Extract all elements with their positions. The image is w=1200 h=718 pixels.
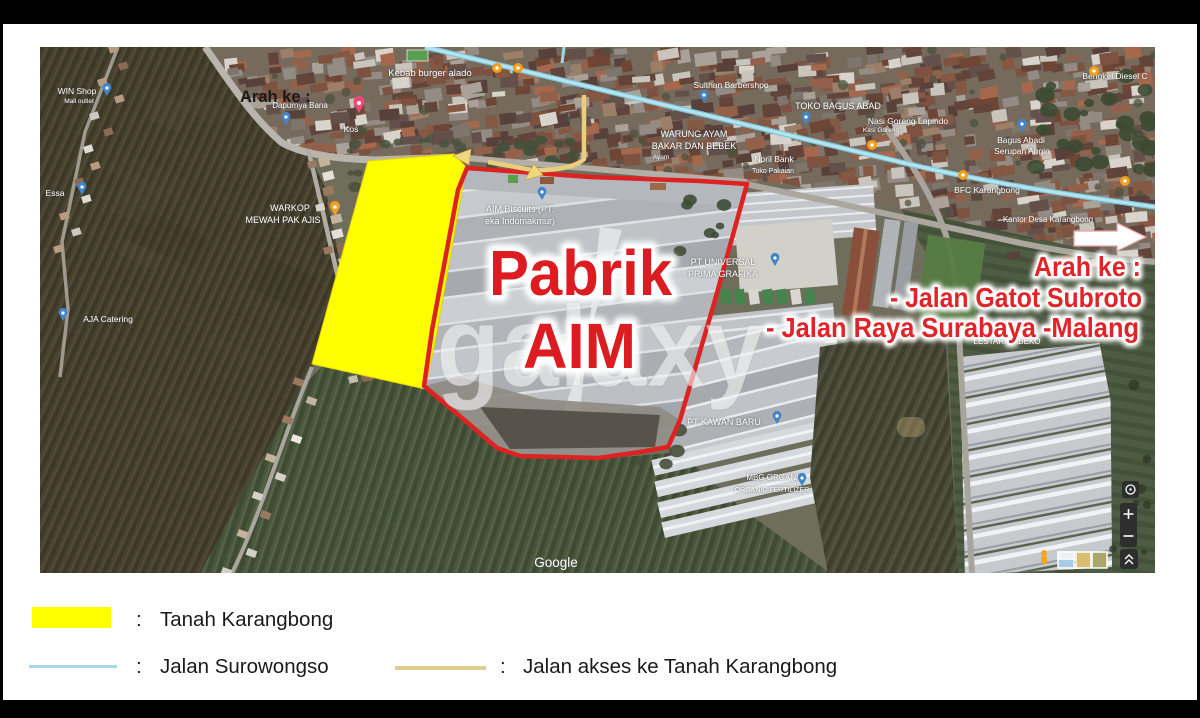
svg-text:Pabrik: Pabrik [489,237,672,309]
svg-text:Google: Google [534,555,578,570]
svg-text:BAKAR DAN BEBEK: BAKAR DAN BEBEK [652,141,737,151]
svg-text:Bagus Abadi: Bagus Abadi [997,135,1045,145]
svg-text:Kebab burger alado: Kebab burger alado [388,68,471,79]
svg-text:AIM Biscuits (PT.: AIM Biscuits (PT. [486,204,554,214]
svg-text:Mall outlet: Mall outlet [64,98,94,105]
svg-text:WARUNG AYAM: WARUNG AYAM [661,129,728,139]
svg-text:Arah ke :: Arah ke : [240,88,311,106]
svg-text:AIM: AIM [523,310,636,382]
svg-text:MBG ORGANIK: MBG ORGANIK [746,473,804,482]
svg-text:- Jalan Gatot Subroto: - Jalan Gatot Subroto [890,282,1142,313]
svg-text:AJA Catering: AJA Catering [83,314,133,324]
svg-text:BFC Karangbong: BFC Karangbong [954,185,1020,195]
svg-text:Toko Pakaian: Toko Pakaian [752,168,794,175]
svg-text:TOKO BAGUS ABAD: TOKO BAGUS ABAD [795,101,881,111]
svg-text:ORGANIC FERTILIZER: ORGANIC FERTILIZER [735,487,810,494]
svg-text:Kasi Goreng: Kasi Goreng [863,127,900,134]
svg-text:Noril Bank: Noril Bank [754,154,794,164]
svg-text:PT KAWAN BARU: PT KAWAN BARU [687,417,761,427]
svg-text:Arah ke :: Arah ke : [1034,251,1141,282]
svg-text:Ayam: Ayam [653,154,670,161]
svg-text:Sulthan Barbershpo: Sulthan Barbershpo [693,80,768,90]
svg-text:PRIMA GRAFIKA: PRIMA GRAFIKA [688,269,758,279]
svg-text:PT UNIVERSAL: PT UNIVERSAL [691,257,756,267]
svg-text:Kos: Kos [344,124,359,134]
svg-text:WIN Shop: WIN Shop [58,86,97,96]
svg-text:Kantor Desa Karangbong: Kantor Desa Karangbong [1003,215,1093,224]
svg-text:Nasi Goreng Lapindo: Nasi Goreng Lapindo [868,116,949,126]
svg-text:MEWAH PAK AJIS: MEWAH PAK AJIS [245,215,320,225]
svg-text:eka Indomakmur): eka Indomakmur) [485,216,555,226]
svg-text:- Jalan Raya Surabaya -Malang: - Jalan Raya Surabaya -Malang [766,312,1139,343]
svg-text:Serupan Angin: Serupan Angin [994,146,1050,156]
svg-text:Essa: Essa [46,188,65,198]
svg-text:WARKOP: WARKOP [270,203,310,213]
